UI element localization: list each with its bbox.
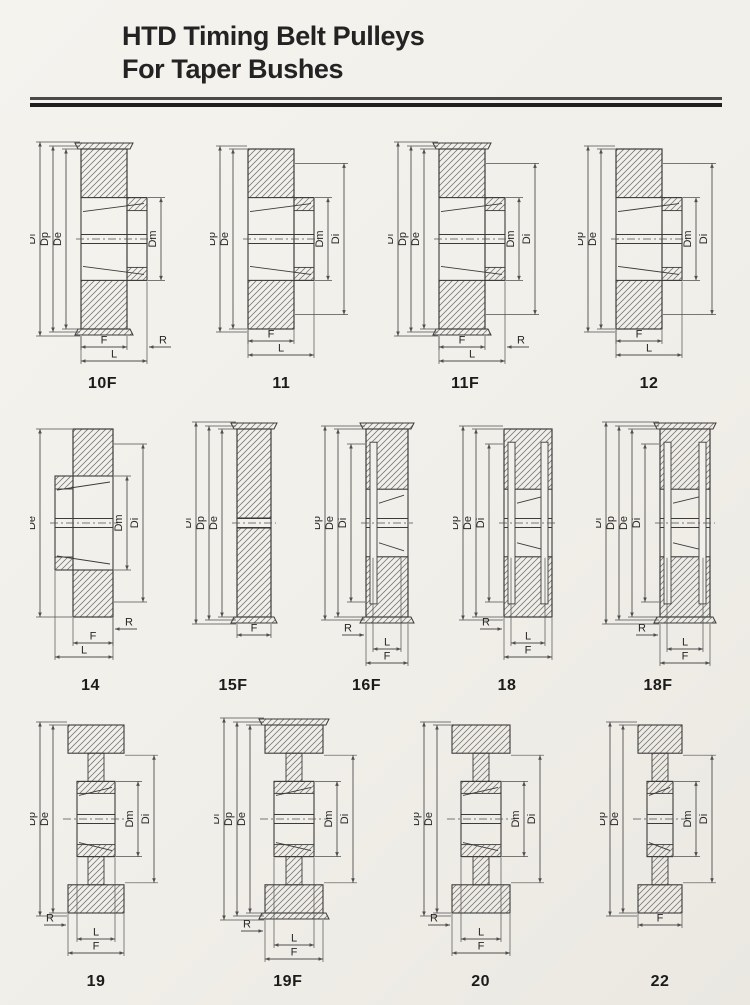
svg-text:R: R — [159, 335, 167, 347]
svg-text:R: R — [46, 913, 54, 925]
svg-text:Di: Di — [475, 518, 487, 528]
svg-text:Dp: Dp — [223, 812, 235, 826]
svg-text:F: F — [93, 941, 100, 953]
svg-text:F: F — [477, 941, 484, 953]
page-header: HTD Timing Belt Pulleys For Taper Bushes — [0, 0, 750, 86]
svg-text:Dm: Dm — [323, 810, 335, 827]
svg-text:R: R — [243, 919, 251, 931]
svg-text:L: L — [111, 349, 117, 361]
svg-text:De: De — [609, 812, 621, 826]
header-rule-thin — [30, 97, 722, 100]
svg-text:De: De — [30, 516, 38, 530]
svg-text:Df: Df — [214, 813, 222, 825]
svg-text:F: F — [636, 329, 643, 341]
pulley-figure-15f: DfDpDeF 15F — [186, 415, 281, 695]
pulley-label: 11F — [451, 375, 479, 393]
svg-text:R: R — [430, 913, 438, 925]
pulley-label: 19F — [273, 973, 302, 991]
svg-text:R: R — [125, 617, 133, 629]
svg-text:Di: Di — [698, 234, 710, 244]
svg-text:Dp: Dp — [195, 516, 207, 530]
pulley-label: 10F — [88, 375, 117, 393]
pulley-figure-18: DpDeDiRLF 18 — [453, 415, 562, 695]
pulley-drawing-18: DpDeDiRLF — [453, 415, 562, 675]
svg-text:R: R — [344, 623, 352, 635]
page-title-line-2: For Taper Bushes — [122, 53, 720, 86]
svg-text:De: De — [587, 232, 599, 246]
svg-text:Dp: Dp — [578, 232, 586, 246]
svg-text:Di: Di — [631, 518, 643, 528]
pulley-drawing-18f: DfDpDeDiRLF — [596, 415, 720, 675]
svg-text:Df: Df — [596, 517, 604, 529]
svg-text:De: De — [618, 516, 630, 530]
svg-text:De: De — [219, 232, 231, 246]
svg-text:Dp: Dp — [414, 812, 422, 826]
svg-text:Dp: Dp — [453, 516, 461, 530]
pulley-drawing-19f: DfDpDeDmDiRLF — [214, 711, 361, 971]
pulley-label: 15F — [218, 677, 247, 695]
svg-text:De: De — [236, 812, 248, 826]
svg-text:Dp: Dp — [397, 232, 409, 246]
pulley-label: 18 — [498, 677, 517, 695]
pulley-figure-16f: DpDeDiRLF 16F — [315, 415, 418, 695]
pulley-label: 16F — [352, 677, 381, 695]
pulley-figure-22: DpDeDmDiF 22 — [600, 711, 720, 991]
pulley-figure-19: DpDeDmDiRLF 19 — [30, 711, 162, 991]
svg-text:Dp: Dp — [210, 232, 218, 246]
svg-text:De: De — [39, 812, 51, 826]
svg-text:Dm: Dm — [113, 514, 125, 531]
svg-text:F: F — [90, 631, 97, 643]
pulley-label: 19 — [87, 973, 106, 991]
pulley-figure-20: DpDeDmDiRLF 20 — [414, 711, 548, 991]
pulley-figure-12: DpDeDmDiFL 12 — [578, 135, 720, 393]
svg-text:Dp: Dp — [605, 516, 617, 530]
svg-text:Dp: Dp — [39, 232, 51, 246]
svg-text:Di: Di — [339, 814, 351, 824]
svg-text:De: De — [423, 812, 435, 826]
svg-text:L: L — [682, 637, 688, 649]
svg-text:Dm: Dm — [682, 810, 694, 827]
svg-text:De: De — [462, 516, 474, 530]
svg-text:Dp: Dp — [30, 812, 38, 826]
svg-text:F: F — [291, 947, 298, 959]
pulley-drawing-12: DpDeDmDiFL — [578, 135, 720, 373]
svg-text:F: F — [101, 335, 108, 347]
page-title: HTD Timing Belt Pulleys For Taper Bushes — [122, 20, 720, 86]
pulley-figure-14: DeDmDiRFL 14 — [30, 415, 151, 695]
pulley-drawing-15f: DfDpDeF — [186, 415, 281, 675]
svg-text:Di: Di — [140, 814, 152, 824]
svg-text:De: De — [208, 516, 220, 530]
header-rule-thick — [30, 103, 722, 107]
pulley-figure-19f: DfDpDeDmDiRLF 19F — [214, 711, 361, 991]
svg-text:L: L — [384, 637, 390, 649]
svg-text:Dm: Dm — [147, 230, 159, 247]
svg-text:Dp: Dp — [315, 516, 323, 530]
svg-text:Di: Di — [521, 234, 533, 244]
svg-text:L: L — [291, 933, 297, 945]
pulley-drawing-22: DpDeDmDiF — [600, 711, 720, 971]
pulley-drawing-11f: DfDpDeDmDiFRL — [388, 135, 543, 373]
svg-text:F: F — [458, 335, 465, 347]
svg-text:L: L — [646, 343, 652, 355]
svg-text:Dm: Dm — [682, 230, 694, 247]
page-title-line-1: HTD Timing Belt Pulleys — [122, 20, 720, 53]
pulley-drawing-11: DpDeDmDiFL — [210, 135, 352, 373]
svg-text:Df: Df — [388, 233, 396, 245]
header-rule — [30, 97, 722, 107]
svg-text:L: L — [478, 927, 484, 939]
pulley-drawing-20: DpDeDmDiRLF — [414, 711, 548, 971]
svg-text:Di: Di — [698, 814, 710, 824]
pulley-figure-11: DpDeDmDiFL 11 — [210, 135, 352, 393]
svg-text:Df: Df — [30, 233, 38, 245]
svg-text:De: De — [324, 516, 336, 530]
svg-text:Di: Di — [129, 518, 141, 528]
svg-text:L: L — [469, 349, 475, 361]
pulley-figure-11f: DfDpDeDmDiFRL 11F — [388, 135, 543, 393]
svg-text:L: L — [93, 927, 99, 939]
pulley-drawing-19: DpDeDmDiRLF — [30, 711, 162, 971]
pulley-figure-10f: DfDpDeDmFRL 10F — [30, 135, 175, 393]
svg-text:F: F — [657, 913, 664, 925]
pulley-drawing-10f: DfDpDeDmFRL — [30, 135, 175, 373]
svg-text:Di: Di — [526, 814, 538, 824]
svg-text:Dm: Dm — [124, 810, 136, 827]
pulley-label: 14 — [81, 677, 100, 695]
pulley-row-1: DfDpDeDmFRL 10F DpDeDmDiFL 11 DfDpDeDmDi… — [0, 135, 750, 393]
svg-text:F: F — [268, 329, 275, 341]
pulley-label: 18F — [643, 677, 672, 695]
svg-text:De: De — [410, 232, 422, 246]
svg-text:R: R — [517, 335, 525, 347]
pulley-label: 20 — [471, 973, 490, 991]
pulley-row-3: DpDeDmDiRLF 19 DfDpDeDmDiRLF 19F DpDeDmD… — [0, 711, 750, 991]
svg-text:Dp: Dp — [600, 812, 608, 826]
svg-text:De: De — [52, 232, 64, 246]
svg-text:F: F — [250, 623, 257, 635]
svg-text:Di: Di — [330, 234, 342, 244]
catalog-page: HTD Timing Belt Pulleys For Taper Bushes… — [0, 0, 750, 1005]
svg-text:F: F — [682, 651, 689, 663]
pulley-label: 12 — [640, 375, 659, 393]
svg-text:R: R — [482, 617, 490, 629]
svg-text:Di: Di — [337, 518, 349, 528]
pulley-figure-18f: DfDpDeDiRLF 18F — [596, 415, 720, 695]
svg-text:F: F — [524, 645, 531, 657]
svg-text:F: F — [384, 651, 391, 663]
pulley-drawing-14: DeDmDiRFL — [30, 415, 151, 675]
pulley-label: 22 — [651, 973, 670, 991]
svg-text:R: R — [638, 623, 646, 635]
pulley-label: 11 — [272, 375, 290, 393]
pulley-drawing-16f: DpDeDiRLF — [315, 415, 418, 675]
svg-text:Dm: Dm — [510, 810, 522, 827]
pulley-row-2: DeDmDiRFL 14 DfDpDeF 15F DpDeDiRLF 16F D… — [0, 415, 750, 695]
svg-text:Dm: Dm — [314, 230, 326, 247]
svg-text:L: L — [278, 343, 284, 355]
svg-text:Df: Df — [186, 517, 194, 529]
svg-text:L: L — [81, 645, 87, 657]
svg-text:L: L — [524, 631, 530, 643]
svg-text:Dm: Dm — [505, 230, 517, 247]
